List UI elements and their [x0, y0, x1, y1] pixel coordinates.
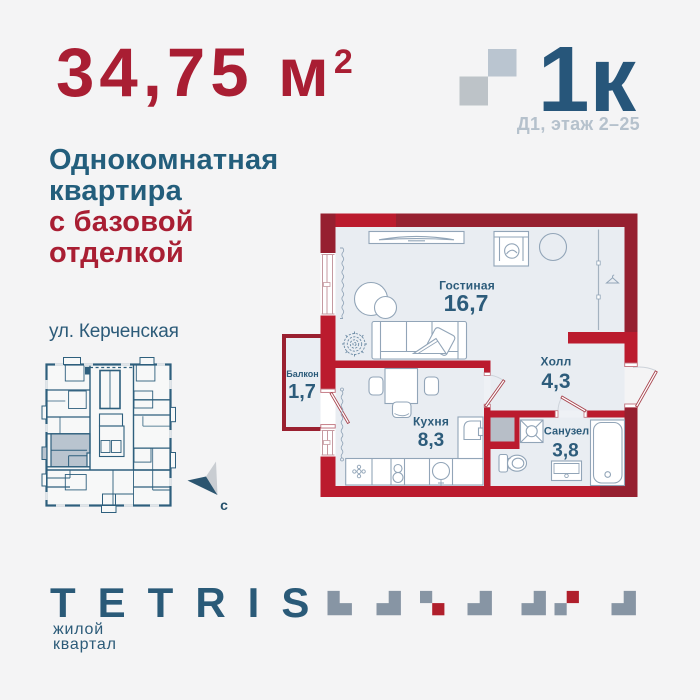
svg-text:Санузел: Санузел [544, 426, 589, 438]
svg-text:4,3: 4,3 [541, 370, 570, 393]
svg-text:3,8: 3,8 [552, 441, 578, 462]
svg-text:Балкон: Балкон [286, 369, 319, 379]
svg-text:Холл: Холл [541, 355, 572, 369]
svg-text:с: с [220, 497, 228, 513]
svg-text:16,7: 16,7 [444, 290, 489, 316]
svg-text:8,3: 8,3 [418, 430, 444, 451]
svg-text:Кухня: Кухня [413, 415, 449, 429]
svg-text:1,7: 1,7 [288, 381, 316, 403]
